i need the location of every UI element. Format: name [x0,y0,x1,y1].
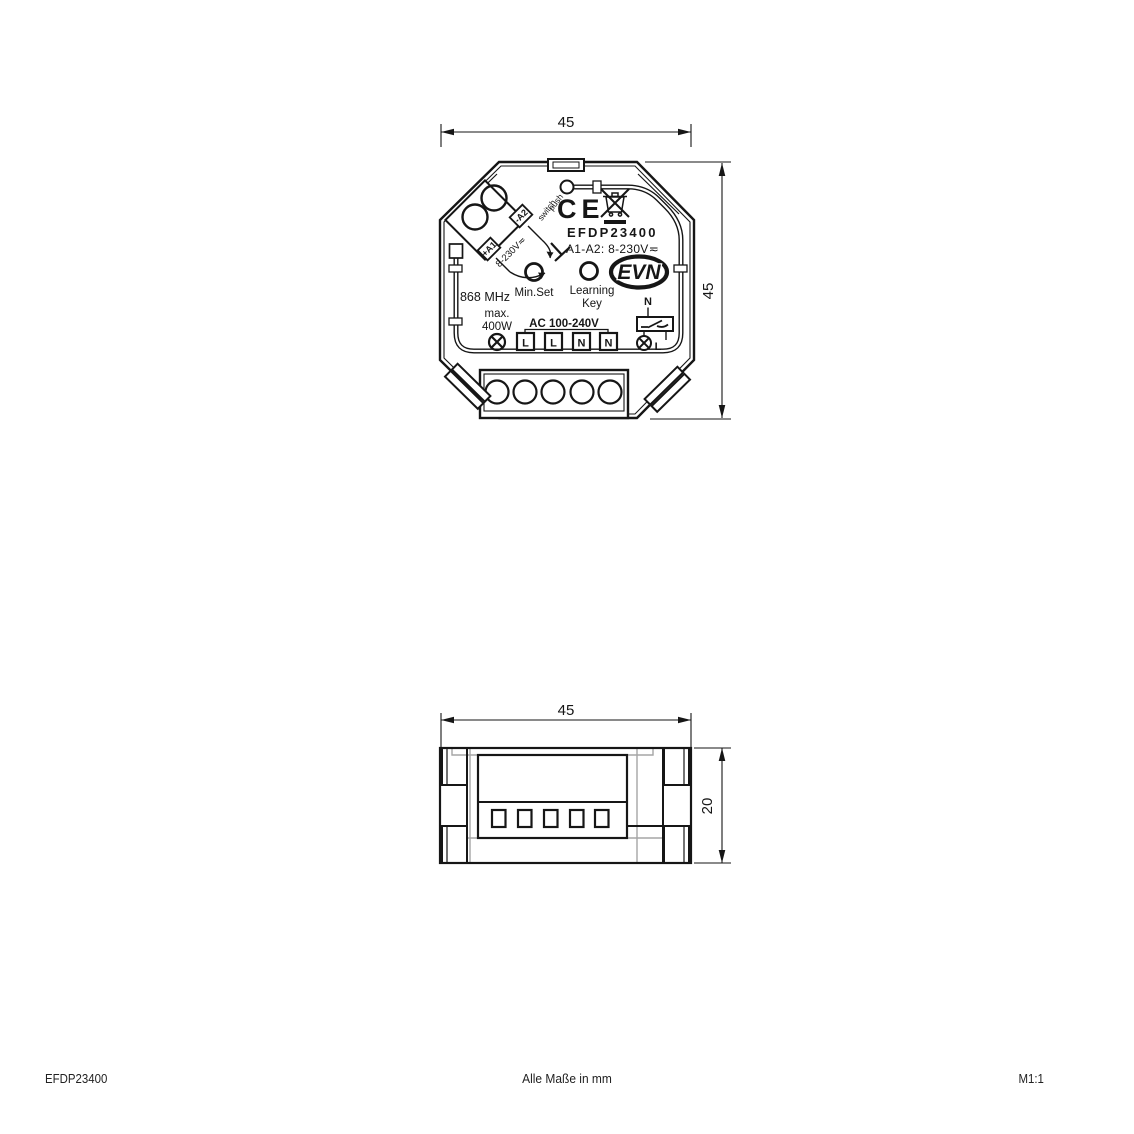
evn-logo: EVN [611,257,667,288]
mounting-claw-right [645,367,690,412]
cover-tab [548,159,584,171]
switched-output: N L [637,296,673,353]
antenna-eyelet [561,181,574,194]
svg-text:L: L [522,338,529,350]
learning-key-label-1: Learning [570,285,615,297]
footer-scale: M1:1 [1019,1071,1044,1086]
antenna-clip [674,265,687,272]
bottom-terminal-block [480,370,628,418]
frequency-label: 868 MHz [460,290,510,304]
mains-terminal-n2: N [600,333,617,350]
learning-key-label-2: Key [582,298,602,310]
technical-drawing: 45 45 [0,0,1134,1134]
learning-key-button [581,263,598,280]
lamp-icon-right [637,336,651,350]
model-text: EFDP23400 [567,225,658,240]
front-view-height-value: 20 [699,798,716,815]
weee-icon [601,189,629,224]
max-label: max. [485,308,510,320]
power-label: 400W [482,321,512,333]
top-view: 45 45 [440,114,731,419]
antenna-wire-cap [450,244,463,258]
front-terminal-block [478,755,627,838]
svg-text:N: N [578,338,586,350]
mains-label: AC 100-240V [529,318,599,330]
min-set-label: Min.Set [515,287,555,299]
top-view-width-value: 45 [558,114,575,131]
antenna-clip [449,318,462,325]
mains-terminal-n1: N [573,333,590,350]
front-view-width-value: 45 [558,702,575,719]
antenna-clip [593,181,601,193]
front-view: 45 20 [440,702,731,863]
svg-text:EVN: EVN [617,261,661,284]
mains-terminal-l1: L [517,333,534,350]
mains-terminal-l2: L [545,333,562,350]
drawing-page: 45 45 [0,0,1134,1134]
rating-text: A1-A2: 8-230V≂ [566,242,659,256]
switched-line-label: L [655,341,662,353]
ce-mark: CE [557,194,605,224]
lamp-icon-left [489,334,505,350]
min-set-button [526,264,543,281]
switched-neutral-label: N [644,296,652,308]
antenna-clip [449,265,462,272]
top-view-height-value: 45 [700,283,717,300]
svg-text:N: N [605,338,613,350]
svg-text:L: L [550,338,557,350]
footer-units-note: Alle Maße in mm [45,1071,1088,1086]
mains-bracket [525,330,608,334]
